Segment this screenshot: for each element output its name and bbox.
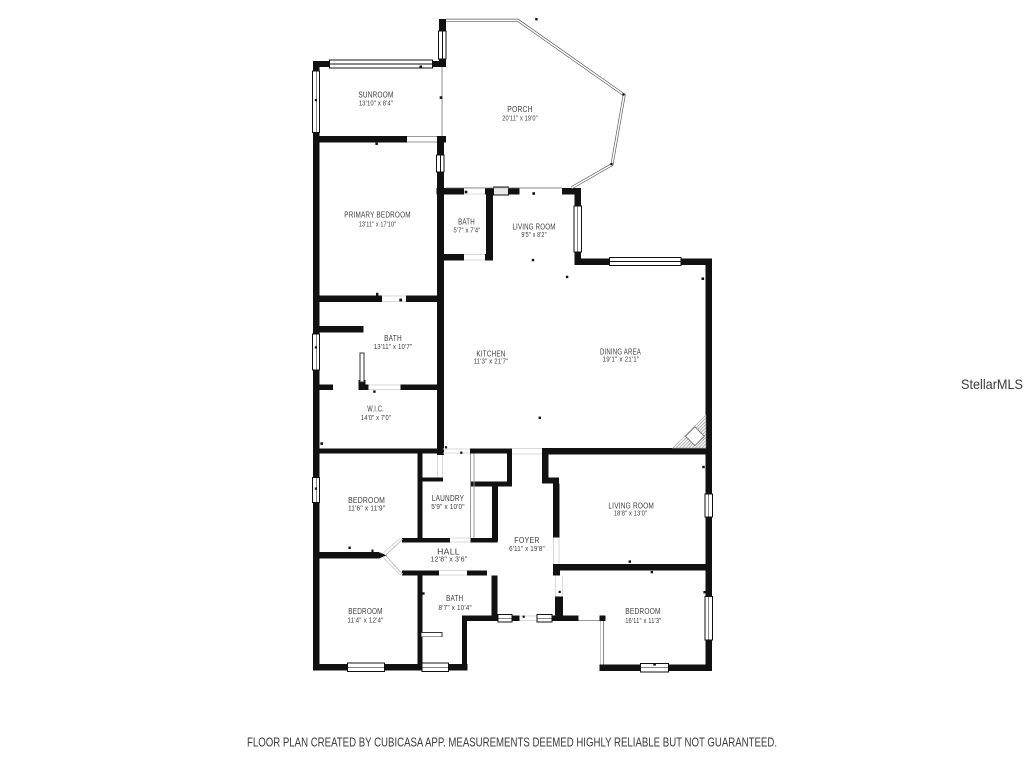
svg-text:13'11" x 10'7": 13'11" x 10'7" (374, 342, 413, 351)
svg-text:PRIMARY BEDROOM: PRIMARY BEDROOM (344, 211, 411, 220)
svg-text:FLOOR PLAN CREATED BY CUBICASA: FLOOR PLAN CREATED BY CUBICASA APP. MEAS… (247, 735, 777, 750)
svg-text:BEDROOM: BEDROOM (625, 607, 660, 616)
svg-text:11'4" x 12'4": 11'4" x 12'4" (347, 616, 383, 625)
svg-text:5'9" x 10'0": 5'9" x 10'0" (431, 502, 464, 511)
svg-text:14'0" x 7'0": 14'0" x 7'0" (361, 413, 391, 422)
svg-text:12'8" x 3'6": 12'8" x 3'6" (431, 554, 468, 563)
svg-text:13'10" x 8'4": 13'10" x 8'4" (359, 99, 393, 108)
svg-text:18'8" x 13'0": 18'8" x 13'0" (614, 509, 647, 518)
svg-text:StellarMLS: StellarMLS (961, 376, 1023, 392)
svg-text:11'6" x 11'9": 11'6" x 11'9" (348, 503, 385, 512)
svg-text:13'11" x 17'10": 13'11" x 17'10" (359, 220, 397, 229)
svg-text:5'7" x 7'4": 5'7" x 7'4" (454, 226, 481, 235)
svg-text:11'3" x 21'7": 11'3" x 21'7" (474, 357, 509, 366)
svg-text:16'11" x 11'3": 16'11" x 11'3" (625, 616, 661, 625)
svg-text:19'1" x 21'1": 19'1" x 21'1" (603, 355, 640, 364)
svg-text:8'7" x 10'4": 8'7" x 10'4" (439, 603, 472, 612)
svg-text:6'11" x 19'8": 6'11" x 19'8" (509, 544, 545, 553)
svg-text:9'5" x 8'2": 9'5" x 8'2" (521, 230, 546, 239)
svg-text:20'11" x 19'0": 20'11" x 19'0" (502, 113, 538, 122)
